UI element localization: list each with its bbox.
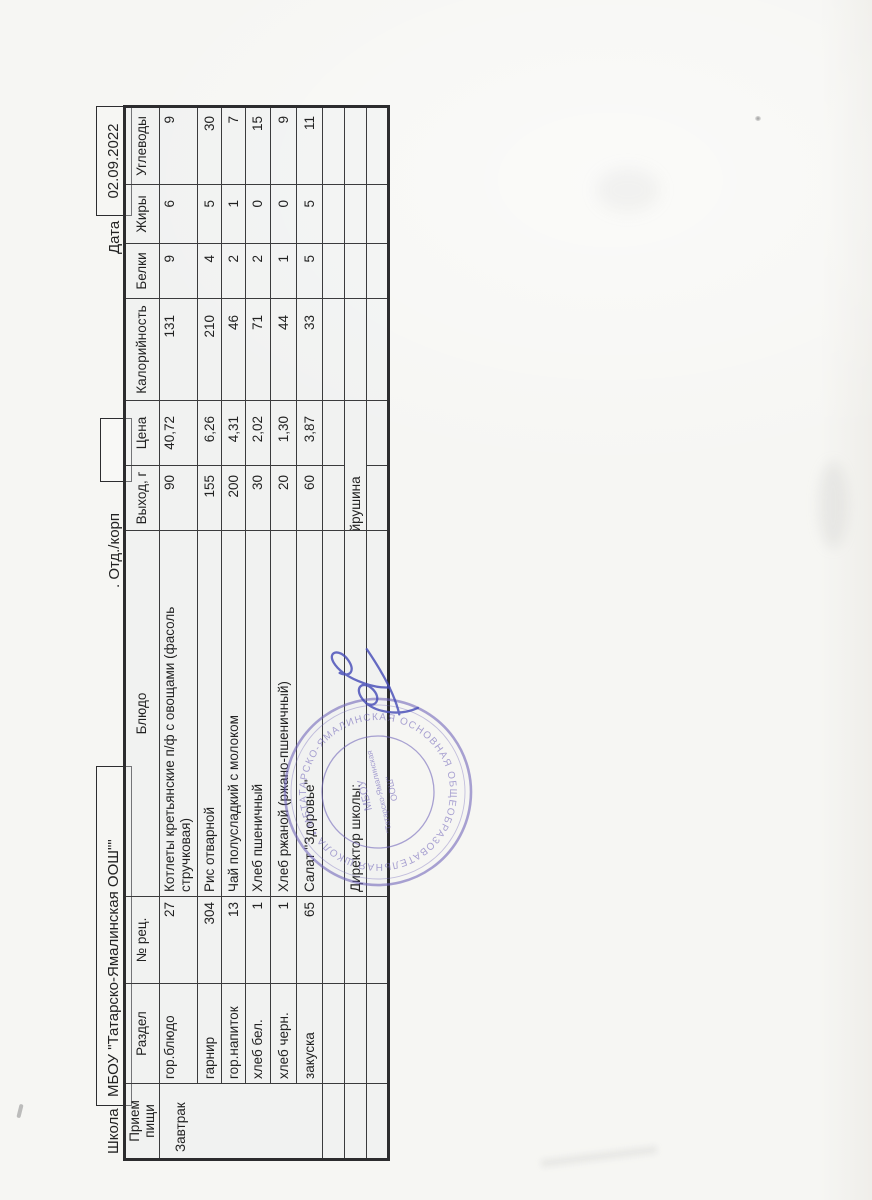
output-cell: 90	[160, 466, 198, 531]
table-row: гарнир 304 Рис отварной 155 6,26 210 4 5…	[198, 107, 222, 1160]
section-cell: гор.напиток	[222, 984, 246, 1084]
output-cell: 155	[198, 466, 222, 531]
fat-cell: 5	[297, 185, 323, 244]
fat-cell: 5	[198, 185, 222, 244]
section-cell: закуска	[297, 984, 323, 1084]
output-cell: 200	[222, 466, 246, 531]
section-cell: гор.блюдо	[160, 984, 198, 1084]
kcal-cell: 131	[160, 299, 198, 401]
header-row: Прием пищи Раздел № рец. Блюдо Выход, г …	[125, 107, 160, 1160]
column-header-recipe: № рец.	[125, 897, 160, 984]
kcal-cell: 46	[222, 299, 246, 401]
carbs-cell: 11	[297, 107, 323, 185]
empty-row	[367, 107, 389, 1160]
table-row: Завтрак гор.блюдо 27 Котлеты кретьянские…	[160, 107, 198, 1160]
protein-cell: 9	[160, 244, 198, 299]
column-header-meal: Прием пищи	[125, 1084, 160, 1160]
protein-cell: 1	[271, 244, 297, 299]
landscape-content: Школа МБОУ "Татарско-Ямалинская ООШ"" . …	[0, 0, 872, 1200]
carbs-cell: 9	[271, 107, 297, 185]
output-cell: 30	[246, 466, 271, 531]
signature-icon	[321, 643, 427, 721]
price-cell: 1,30	[271, 401, 297, 466]
column-header-price: Цена	[125, 401, 160, 466]
carbs-cell: 9	[160, 107, 198, 185]
output-cell: 20	[271, 466, 297, 531]
recipe-cell: 27	[160, 897, 198, 984]
kcal-cell: 210	[198, 299, 222, 401]
column-header-output: Выход, г	[125, 466, 160, 531]
dish-cell: Хлеб пшеничный	[246, 531, 271, 897]
empty-row	[323, 107, 345, 1160]
menu-table: Прием пищи Раздел № рец. Блюдо Выход, г …	[123, 105, 390, 1161]
protein-cell: 2	[246, 244, 271, 299]
fat-cell: 1	[222, 185, 246, 244]
section-cell: гарнир	[198, 984, 222, 1084]
stamp-center-text: ООШ"	[384, 775, 400, 802]
school-label: Школа	[105, 1108, 122, 1154]
table-row: хлеб черн. 1 Хлеб ржаной (ржано-пшеничны…	[271, 107, 297, 1160]
scanned-page: Школа МБОУ "Татарско-Ямалинская ООШ"" . …	[0, 0, 872, 1200]
director-row: Директор школы: Г.Г.Файрушина	[345, 107, 367, 1160]
fat-cell: 0	[271, 185, 297, 244]
section-cell: хлеб бел.	[246, 984, 271, 1084]
protein-cell: 5	[297, 244, 323, 299]
column-header-carbs: Углеводы	[125, 107, 160, 185]
column-header-fat: Жиры	[125, 185, 160, 244]
protein-cell: 4	[198, 244, 222, 299]
price-cell: 40,72	[160, 401, 198, 466]
fat-cell: 6	[160, 185, 198, 244]
meal-cell: Завтрак	[160, 1084, 323, 1160]
carbs-cell: 15	[246, 107, 271, 185]
output-cell: 60	[297, 466, 323, 531]
director-signature	[321, 643, 427, 721]
price-cell: 3,87	[297, 401, 323, 466]
column-header-dish: Блюдо	[125, 531, 160, 897]
table-row: закуска 65 Салат "Здоровье" 60 3,87 33 5…	[297, 107, 323, 1160]
column-header-section: Раздел	[125, 984, 160, 1084]
price-cell: 4,31	[222, 401, 246, 466]
table-row: хлеб бел. 1 Хлеб пшеничный 30 2,02 71 2 …	[246, 107, 271, 1160]
recipe-cell: 1	[246, 897, 271, 984]
price-cell: 6,26	[198, 401, 222, 466]
kcal-cell: 71	[246, 299, 271, 401]
fat-cell: 0	[246, 185, 271, 244]
dish-cell: Рис отварной	[198, 531, 222, 897]
director-signature-cell: Г.Г.Файрушина	[345, 401, 367, 531]
date-label: Дата	[106, 221, 123, 254]
recipe-cell: 1	[271, 897, 297, 984]
recipe-cell: 13	[222, 897, 246, 984]
recipe-cell: 304	[198, 897, 222, 984]
dish-cell: Чай полусладкий с молоком	[222, 531, 246, 897]
column-header-kcal: Калорийность	[125, 299, 160, 401]
carbs-cell: 7	[222, 107, 246, 185]
director-name: Г.Г.Файрушина	[348, 476, 364, 530]
protein-cell: 2	[222, 244, 246, 299]
carbs-cell: 30	[198, 107, 222, 185]
dept-label: . Отд./корп	[106, 513, 123, 588]
table-row: гор.напиток 13 Чай полусладкий с молоком…	[222, 107, 246, 1160]
section-cell: хлеб черн.	[271, 984, 297, 1084]
kcal-cell: 44	[271, 299, 297, 401]
column-header-protein: Белки	[125, 244, 160, 299]
price-cell: 2,02	[246, 401, 271, 466]
kcal-cell: 33	[297, 299, 323, 401]
dish-cell: Котлеты кретьянские п/ф с овощами (фасол…	[160, 531, 198, 897]
